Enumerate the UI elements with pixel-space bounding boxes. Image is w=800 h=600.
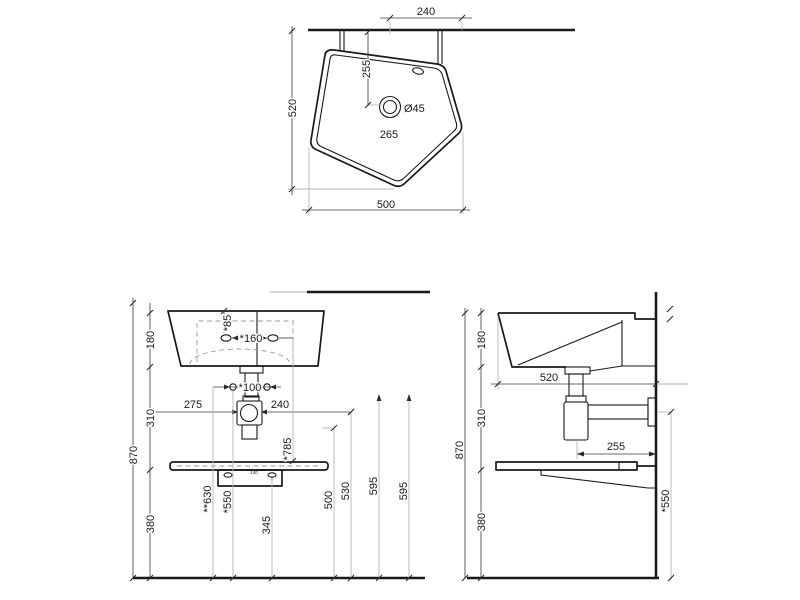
drain-hole-outer [380, 97, 401, 118]
dim-label: 310 [145, 409, 157, 427]
dim-label: *785 [282, 438, 294, 461]
dim-label: *550 [660, 490, 672, 513]
dim-label: 180 [476, 331, 488, 349]
side-outlet-pipe [588, 405, 648, 419]
dim-label: 500 [377, 199, 395, 211]
front-bowl-hidden-arc [190, 349, 290, 364]
side-dim-520: 520 [491, 316, 659, 390]
bracket-small-label: 140 [250, 470, 258, 475]
front-dim-160: *160 [232, 333, 293, 345]
dim-label: 380 [145, 515, 157, 533]
dim-label: 870 [454, 441, 466, 459]
side-view: 520 255 870 [454, 292, 688, 581]
dim-label: 380 [476, 513, 488, 531]
dim-label: 500 [323, 491, 335, 509]
drain-hole-inner [384, 101, 397, 114]
tap-hole-right [268, 335, 278, 341]
dim-label: 530 [340, 482, 352, 500]
side-dim-870: 870 [454, 308, 468, 581]
side-dim-550: *550 [657, 409, 674, 581]
front-drain-flange [240, 366, 263, 373]
side-shelf [496, 462, 655, 488]
dim-label: 520 [287, 99, 299, 117]
dim-label: **630 [202, 486, 214, 513]
dim-label: 520 [540, 372, 558, 384]
dim-label: 255 [607, 441, 625, 453]
side-dim-255: 255 [577, 441, 656, 459]
dim-label: Ø45 [404, 103, 425, 115]
dim-label: 275 [184, 399, 202, 411]
tap-hole-left [221, 335, 231, 341]
dim-label: 180 [145, 331, 157, 349]
front-dim-100: *100 [213, 382, 281, 394]
plan-dim-500: 500 [302, 132, 470, 214]
front-height-references: **630 *550 345 *785 500 530 595 [202, 338, 412, 581]
front-dim-chain: 180 310 380 [145, 303, 157, 581]
side-shelf-bracket [541, 470, 655, 488]
dim-label: 265 [380, 129, 398, 141]
dim-label: 240 [271, 399, 289, 411]
plan-dim-255: 255 [361, 29, 382, 108]
front-view: *85 *160 *100 [128, 292, 430, 581]
dim-label: 595 [398, 482, 410, 500]
dim-label: *100 [239, 382, 262, 394]
front-siphon [237, 396, 262, 439]
plan-view: 240 255 Ø45 265 520 500 [287, 6, 575, 214]
dim-label: 310 [476, 409, 488, 427]
overflow-hole [412, 67, 424, 75]
dim-label: 345 [261, 516, 273, 534]
side-basin-outline [498, 313, 656, 371]
technical-drawing: 240 255 Ø45 265 520 500 [0, 0, 800, 600]
side-siphon [564, 367, 656, 440]
front-dim-870: 870 [128, 298, 140, 581]
dim-label: *160 [240, 333, 263, 345]
dim-label: *85 [222, 315, 234, 332]
dim-label: 870 [128, 446, 140, 464]
dim-label: 255 [361, 60, 373, 78]
dim-label: 595 [368, 477, 380, 495]
side-dim-chain: 180 310 380 [476, 308, 488, 581]
dim-label: 240 [417, 6, 435, 18]
plan-mounting-tabs [340, 31, 442, 64]
plan-basin-inner-outline [317, 55, 457, 181]
dim-label: *550 [222, 491, 234, 514]
drawing-page: 240 255 Ø45 265 520 500 [0, 0, 800, 600]
